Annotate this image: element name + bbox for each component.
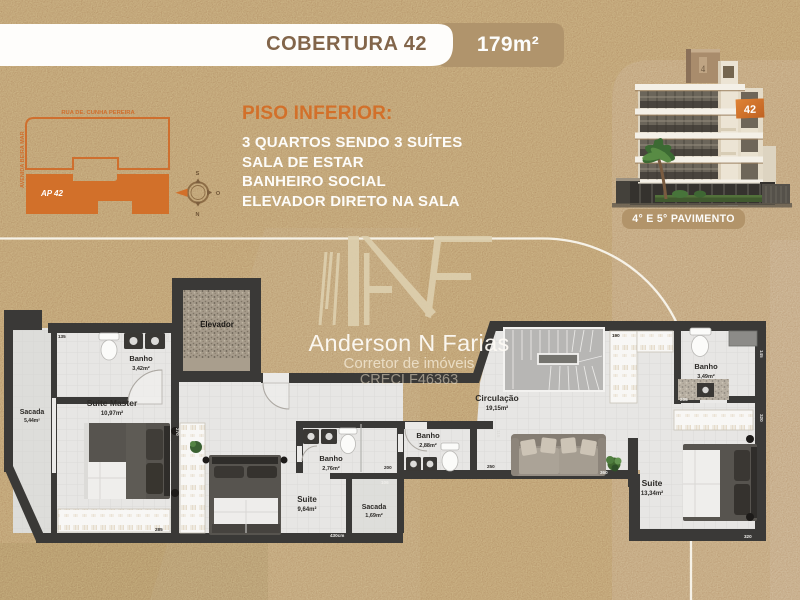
svg-text:270: 270 xyxy=(175,428,180,436)
svg-text:4: 4 xyxy=(701,64,706,74)
svg-text:Sacada: Sacada xyxy=(362,504,387,511)
svg-text:10,97m²: 10,97m² xyxy=(101,410,123,417)
svg-text:320: 320 xyxy=(759,414,764,422)
svg-text:Banho: Banho xyxy=(416,431,440,440)
svg-text:42: 42 xyxy=(744,104,757,116)
svg-text:Elevador: Elevador xyxy=(200,320,234,329)
svg-text:320: 320 xyxy=(744,534,752,539)
svg-text:9,64m²: 9,64m² xyxy=(297,506,316,513)
svg-text:13,34m²: 13,34m² xyxy=(641,490,663,497)
svg-text:2,88m²: 2,88m² xyxy=(419,442,437,449)
svg-text:AVENIDA BEIRA MAR: AVENIDA BEIRA MAR xyxy=(20,131,26,188)
svg-text:19,15m²: 19,15m² xyxy=(486,405,508,412)
svg-text:2,76m²: 2,76m² xyxy=(322,465,340,472)
svg-text:Suite: Suite xyxy=(642,478,663,488)
svg-text:Suite Master: Suite Master xyxy=(87,398,138,408)
svg-text:Sacada: Sacada xyxy=(20,409,45,416)
svg-text:190: 190 xyxy=(612,333,620,338)
svg-text:Suite: Suite xyxy=(297,495,317,504)
svg-text:430cm: 430cm xyxy=(330,533,344,538)
svg-text:360: 360 xyxy=(600,470,608,475)
svg-text:Banho: Banho xyxy=(694,362,718,371)
svg-text:106: 106 xyxy=(381,480,389,485)
svg-text:285: 285 xyxy=(155,527,163,532)
svg-text:Banho: Banho xyxy=(319,454,343,463)
svg-text:N: N xyxy=(196,212,200,218)
svg-text:145: 145 xyxy=(759,350,764,358)
svg-text:O: O xyxy=(216,191,221,197)
svg-text:3,49m²: 3,49m² xyxy=(697,373,715,380)
svg-text:200: 200 xyxy=(384,465,392,470)
svg-text:520: 520 xyxy=(46,523,51,531)
svg-text:AP 42: AP 42 xyxy=(40,189,63,198)
svg-text:3,42m²: 3,42m² xyxy=(132,365,150,372)
svg-text:135: 135 xyxy=(58,334,66,339)
svg-text:Circulação: Circulação xyxy=(475,393,518,403)
svg-text:1,69m²: 1,69m² xyxy=(365,512,383,519)
svg-text:S: S xyxy=(196,171,200,177)
svg-text:320: 320 xyxy=(165,333,170,341)
svg-text:5,44m²: 5,44m² xyxy=(24,418,40,424)
svg-text:Banho: Banho xyxy=(129,354,153,363)
svg-text:RUA DE. CUNHA PEREIRA: RUA DE. CUNHA PEREIRA xyxy=(61,110,135,116)
svg-text:250: 250 xyxy=(487,464,495,469)
svg-text:115: 115 xyxy=(496,430,501,438)
svg-text:205: 205 xyxy=(680,397,688,402)
